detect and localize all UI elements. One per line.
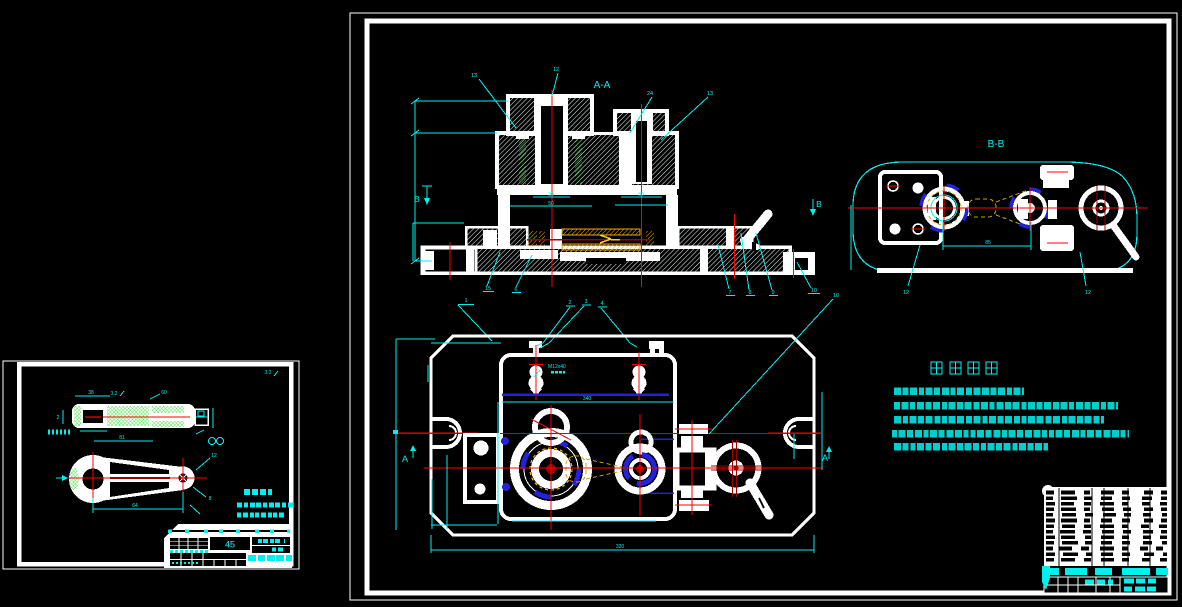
svg-text:50: 50 <box>548 201 554 207</box>
svg-text:3.2: 3.2 <box>111 391 118 397</box>
svg-text:60: 60 <box>161 390 167 396</box>
svg-text:64: 64 <box>132 503 138 509</box>
svg-text:3: 3 <box>584 299 587 305</box>
svg-text:13: 13 <box>707 91 713 97</box>
svg-text:24: 24 <box>647 91 653 97</box>
svg-text:10: 10 <box>833 293 839 299</box>
svg-text:M12x40: M12x40 <box>548 364 566 370</box>
svg-text:12: 12 <box>211 453 217 459</box>
svg-text:2: 2 <box>568 300 571 306</box>
svg-text:13: 13 <box>471 73 477 79</box>
svg-text:81: 81 <box>119 435 125 441</box>
svg-text:3.2: 3.2 <box>265 370 272 376</box>
svg-text:B: B <box>414 194 420 204</box>
svg-text:B-B: B-B <box>988 139 1005 150</box>
svg-text:12: 12 <box>553 67 559 73</box>
svg-text:30: 30 <box>638 192 644 198</box>
svg-text:1: 1 <box>464 298 467 304</box>
svg-text:320: 320 <box>616 544 625 550</box>
svg-text:2: 2 <box>57 415 60 421</box>
svg-text:12: 12 <box>903 290 909 296</box>
svg-text:4: 4 <box>600 301 603 307</box>
svg-text:12: 12 <box>1085 290 1091 296</box>
svg-text:45: 45 <box>225 540 235 550</box>
svg-text:340: 340 <box>583 396 592 402</box>
svg-text:85: 85 <box>985 240 991 246</box>
svg-text:30: 30 <box>548 192 554 198</box>
svg-text:38: 38 <box>88 390 94 396</box>
svg-text:A-A: A-A <box>594 80 611 91</box>
svg-text:A: A <box>402 454 408 464</box>
svg-text:8: 8 <box>209 496 212 502</box>
svg-text:A: A <box>822 453 828 463</box>
svg-text:B: B <box>816 199 822 209</box>
